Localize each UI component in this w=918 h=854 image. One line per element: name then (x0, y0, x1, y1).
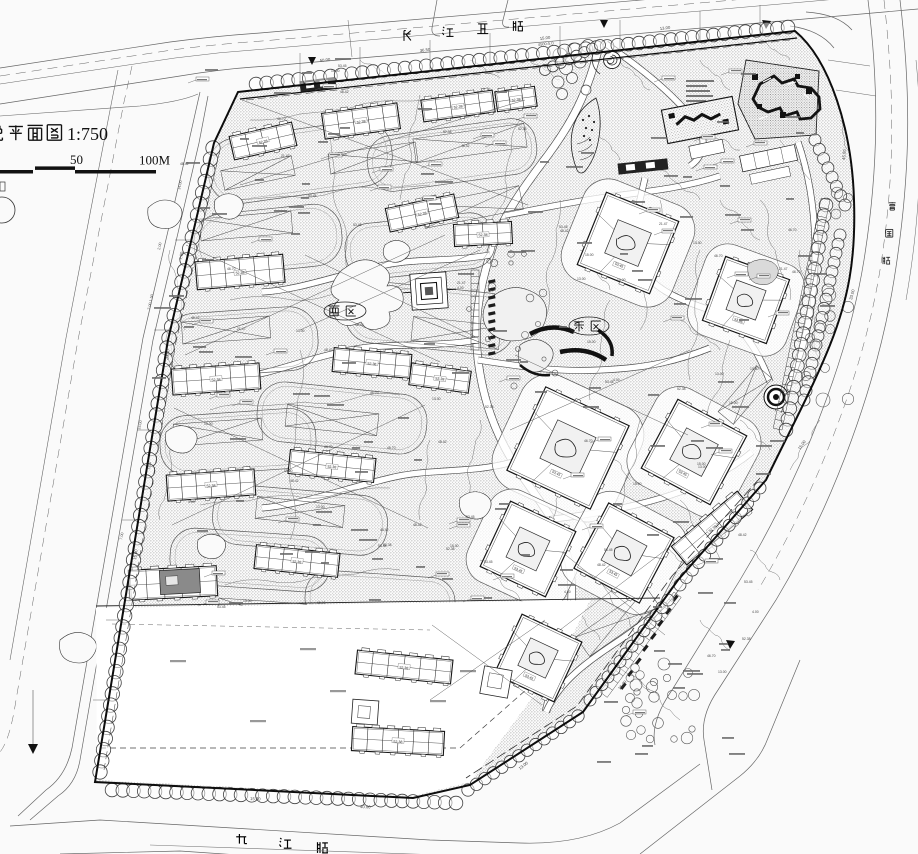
svg-text:53.45: 53.45 (604, 548, 613, 552)
svg-text:48.42: 48.42 (438, 440, 447, 444)
svg-text:15.00: 15.00 (633, 482, 642, 486)
svg-text:100M: 100M (139, 153, 171, 168)
svg-text:46.70: 46.70 (781, 389, 790, 393)
svg-text:15.00: 15.00 (585, 253, 594, 257)
svg-text:46.70: 46.70 (792, 270, 801, 274)
svg-text:53.45: 53.45 (217, 605, 226, 609)
svg-text:13.00: 13.00 (331, 69, 340, 73)
svg-text:13.00: 13.00 (718, 670, 727, 674)
svg-text:13.00: 13.00 (750, 367, 759, 371)
svg-text:46.70: 46.70 (370, 391, 379, 395)
svg-text:4.00: 4.00 (752, 610, 759, 614)
svg-text:46.70: 46.70 (227, 267, 236, 271)
svg-text:21.47: 21.47 (659, 222, 668, 226)
svg-text:48.42: 48.42 (461, 144, 470, 148)
svg-text:13.00: 13.00 (316, 505, 325, 509)
svg-text:52.38: 52.38 (518, 127, 527, 131)
svg-text:48.42: 48.42 (738, 533, 747, 537)
svg-text:48.42: 48.42 (560, 229, 569, 233)
svg-text:13.00: 13.00 (698, 465, 707, 469)
svg-text:48.42: 48.42 (380, 528, 389, 532)
svg-text:53.45: 53.45 (353, 223, 362, 227)
svg-text:1:750: 1:750 (67, 124, 108, 144)
svg-text:48.42: 48.42 (290, 479, 299, 483)
svg-text:40.00: 40.00 (360, 804, 371, 810)
svg-text:13.00: 13.00 (715, 372, 724, 376)
svg-text:52.38: 52.38 (367, 362, 376, 367)
svg-text:21.47: 21.47 (281, 154, 290, 158)
svg-text:52.38: 52.38 (443, 130, 452, 134)
svg-text:13.00: 13.00 (432, 397, 441, 401)
svg-text:15.00: 15.00 (450, 544, 459, 548)
svg-text:53.45: 53.45 (484, 560, 493, 564)
svg-text:52.38: 52.38 (393, 740, 402, 744)
svg-text:52.38: 52.38 (478, 233, 487, 237)
svg-text:52.38: 52.38 (206, 484, 215, 489)
svg-text:48.42: 48.42 (191, 316, 200, 320)
svg-text:46.70: 46.70 (788, 228, 797, 232)
svg-text:15.00: 15.00 (243, 599, 252, 603)
svg-text:4.00: 4.00 (613, 378, 620, 382)
svg-text:53.45: 53.45 (605, 380, 614, 384)
svg-text:52.38: 52.38 (677, 387, 686, 391)
svg-text:4.00: 4.00 (188, 500, 195, 504)
svg-text:48.42: 48.42 (413, 523, 422, 527)
svg-text:48.42: 48.42 (324, 348, 333, 352)
svg-text:4.00: 4.00 (564, 590, 571, 594)
svg-text:4.00: 4.00 (457, 286, 464, 290)
svg-text:53.45: 53.45 (308, 194, 317, 198)
svg-text:53.45: 53.45 (338, 64, 347, 68)
svg-text:46.70: 46.70 (324, 445, 333, 449)
svg-text:15.00: 15.00 (617, 278, 626, 282)
svg-text:46.70: 46.70 (277, 117, 286, 121)
svg-text:45.00: 45.00 (841, 149, 847, 161)
svg-text:53.45: 53.45 (744, 580, 753, 584)
svg-text:13.00: 13.00 (577, 277, 586, 281)
svg-text:52.38: 52.38 (383, 543, 392, 547)
svg-text:15.00: 15.00 (250, 796, 261, 802)
svg-text:52.38: 52.38 (211, 378, 220, 383)
svg-text:21.47: 21.47 (457, 281, 466, 285)
svg-text:50: 50 (70, 152, 83, 167)
svg-text:52.38: 52.38 (742, 637, 751, 641)
svg-text:21.47: 21.47 (779, 267, 788, 271)
svg-text:21.47: 21.47 (482, 88, 491, 92)
svg-text:48.42: 48.42 (597, 563, 606, 567)
svg-text:15.00: 15.00 (317, 601, 326, 605)
svg-text:46.70: 46.70 (714, 254, 723, 258)
svg-text:13.00: 13.00 (693, 241, 702, 245)
svg-text:15.00: 15.00 (587, 340, 596, 344)
svg-text:48.42: 48.42 (340, 90, 349, 94)
svg-text:48.42: 48.42 (180, 162, 189, 166)
svg-text:46.70: 46.70 (707, 654, 716, 658)
svg-text:46.70: 46.70 (387, 446, 396, 450)
svg-text:13.00: 13.00 (296, 329, 305, 333)
svg-text:15.00: 15.00 (729, 401, 738, 405)
svg-text:52.38: 52.38 (485, 405, 494, 409)
